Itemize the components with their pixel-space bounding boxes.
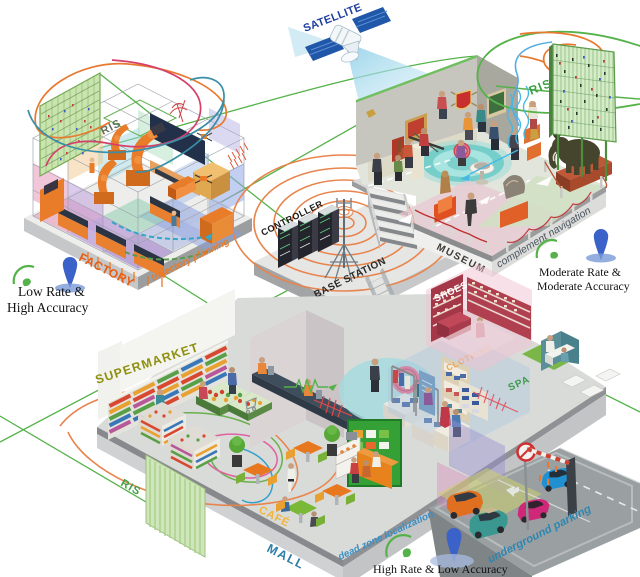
svg-text:High Accuracy: High Accuracy	[7, 300, 89, 315]
svg-text:Moderate Accuracy: Moderate Accuracy	[537, 279, 630, 293]
svg-text:Moderate Rate &: Moderate Rate &	[539, 265, 621, 279]
svg-text:Low Rate &: Low Rate &	[18, 284, 85, 299]
svg-text:High Rate & Low Accuracy: High Rate & Low Accuracy	[373, 562, 508, 576]
